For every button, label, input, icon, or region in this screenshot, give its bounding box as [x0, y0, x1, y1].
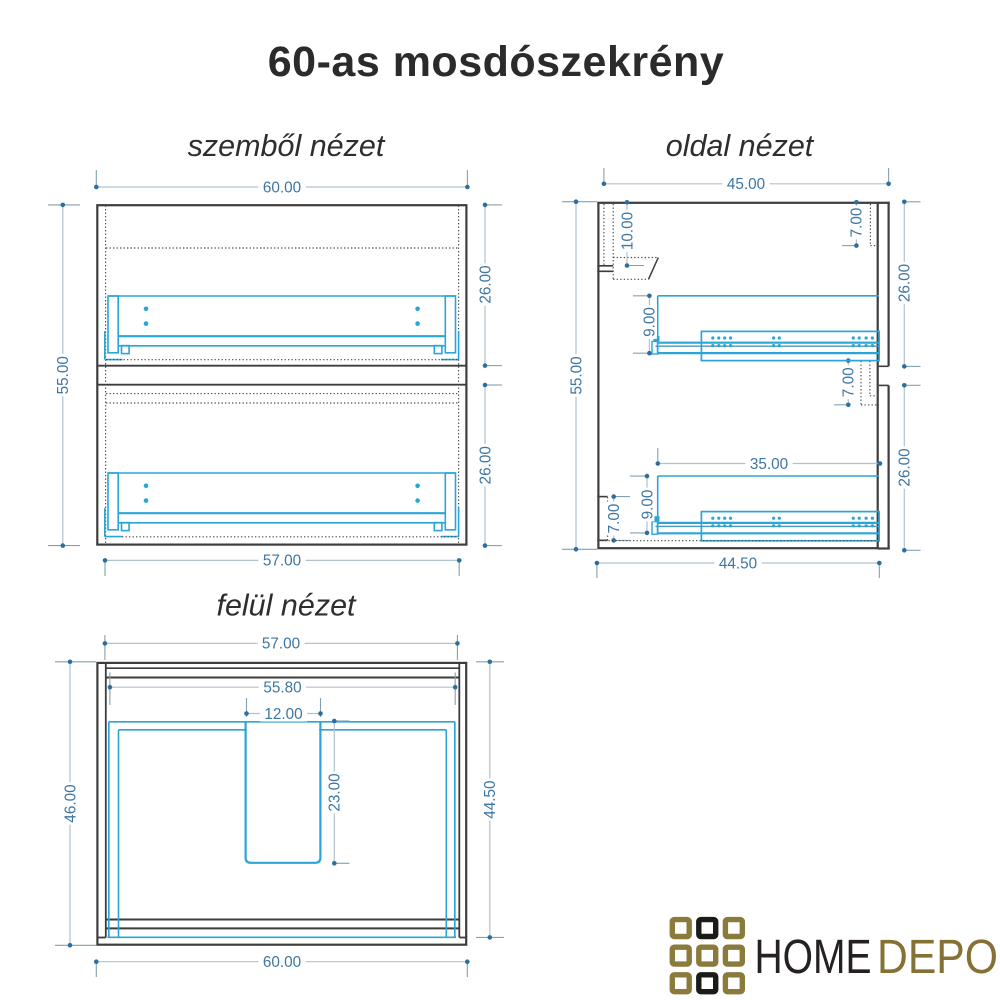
svg-text:60.00: 60.00 [263, 179, 301, 196]
svg-text:57.00: 57.00 [263, 553, 301, 570]
svg-text:26.00: 26.00 [477, 265, 494, 303]
svg-text:44.50: 44.50 [719, 555, 757, 572]
svg-text:7.00: 7.00 [606, 504, 623, 534]
svg-text:szemből nézet: szemből nézet [188, 129, 386, 163]
svg-text:HOME: HOME [755, 930, 872, 984]
svg-text:55.80: 55.80 [263, 680, 301, 697]
svg-text:9.00: 9.00 [639, 490, 656, 520]
svg-text:57.00: 57.00 [262, 636, 300, 653]
svg-text:26.00: 26.00 [897, 264, 914, 302]
svg-text:44.50: 44.50 [482, 780, 499, 818]
svg-text:7.00: 7.00 [841, 367, 858, 397]
svg-text:35.00: 35.00 [750, 456, 788, 473]
svg-text:23.00: 23.00 [327, 773, 344, 811]
svg-text:felül nézet: felül nézet [216, 589, 357, 623]
svg-text:55.00: 55.00 [568, 356, 585, 394]
svg-text:60.00: 60.00 [263, 954, 301, 971]
svg-text:60-as mosdószekrény: 60-as mosdószekrény [268, 38, 724, 86]
svg-text:9.00: 9.00 [642, 307, 659, 337]
svg-text:55.00: 55.00 [55, 356, 72, 394]
svg-text:12.00: 12.00 [264, 706, 302, 723]
svg-text:10.00: 10.00 [619, 212, 636, 250]
svg-text:7.00: 7.00 [849, 208, 866, 238]
svg-text:oldal nézet: oldal nézet [666, 129, 815, 163]
svg-text:45.00: 45.00 [727, 176, 765, 193]
svg-text:DEPO: DEPO [877, 930, 998, 984]
svg-text:26.00: 26.00 [477, 446, 494, 484]
svg-text:46.00: 46.00 [62, 784, 79, 822]
svg-text:26.00: 26.00 [897, 448, 914, 486]
